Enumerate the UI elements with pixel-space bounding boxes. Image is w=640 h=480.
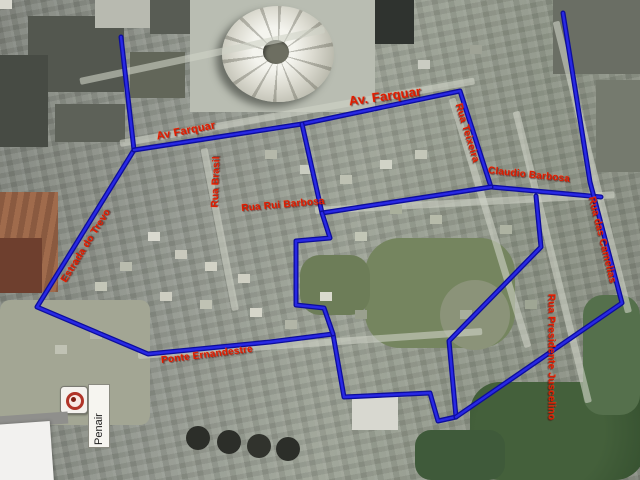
poi-marker[interactable] (60, 386, 88, 414)
poi-label: Penair (88, 384, 110, 448)
roundabout-field (440, 280, 510, 350)
poi-label-text: Penair (93, 413, 105, 445)
building-block (0, 55, 48, 147)
map-watermark: mapa: (0, 421, 54, 480)
building-block (596, 80, 640, 172)
building-block (352, 396, 398, 430)
building-block (95, 0, 150, 28)
forest-patch (583, 295, 640, 415)
map-canvas[interactable]: Av FarquarAv. FarquarRua TeixeiraClaudio… (0, 0, 640, 480)
vegetation-patch (300, 255, 370, 315)
building-block (55, 104, 125, 142)
farm-field (0, 238, 42, 293)
target-icon-dot (71, 397, 76, 402)
rooftop-speckles (0, 0, 12, 9)
forest-patch (415, 430, 505, 480)
storage-tanks (186, 426, 210, 450)
